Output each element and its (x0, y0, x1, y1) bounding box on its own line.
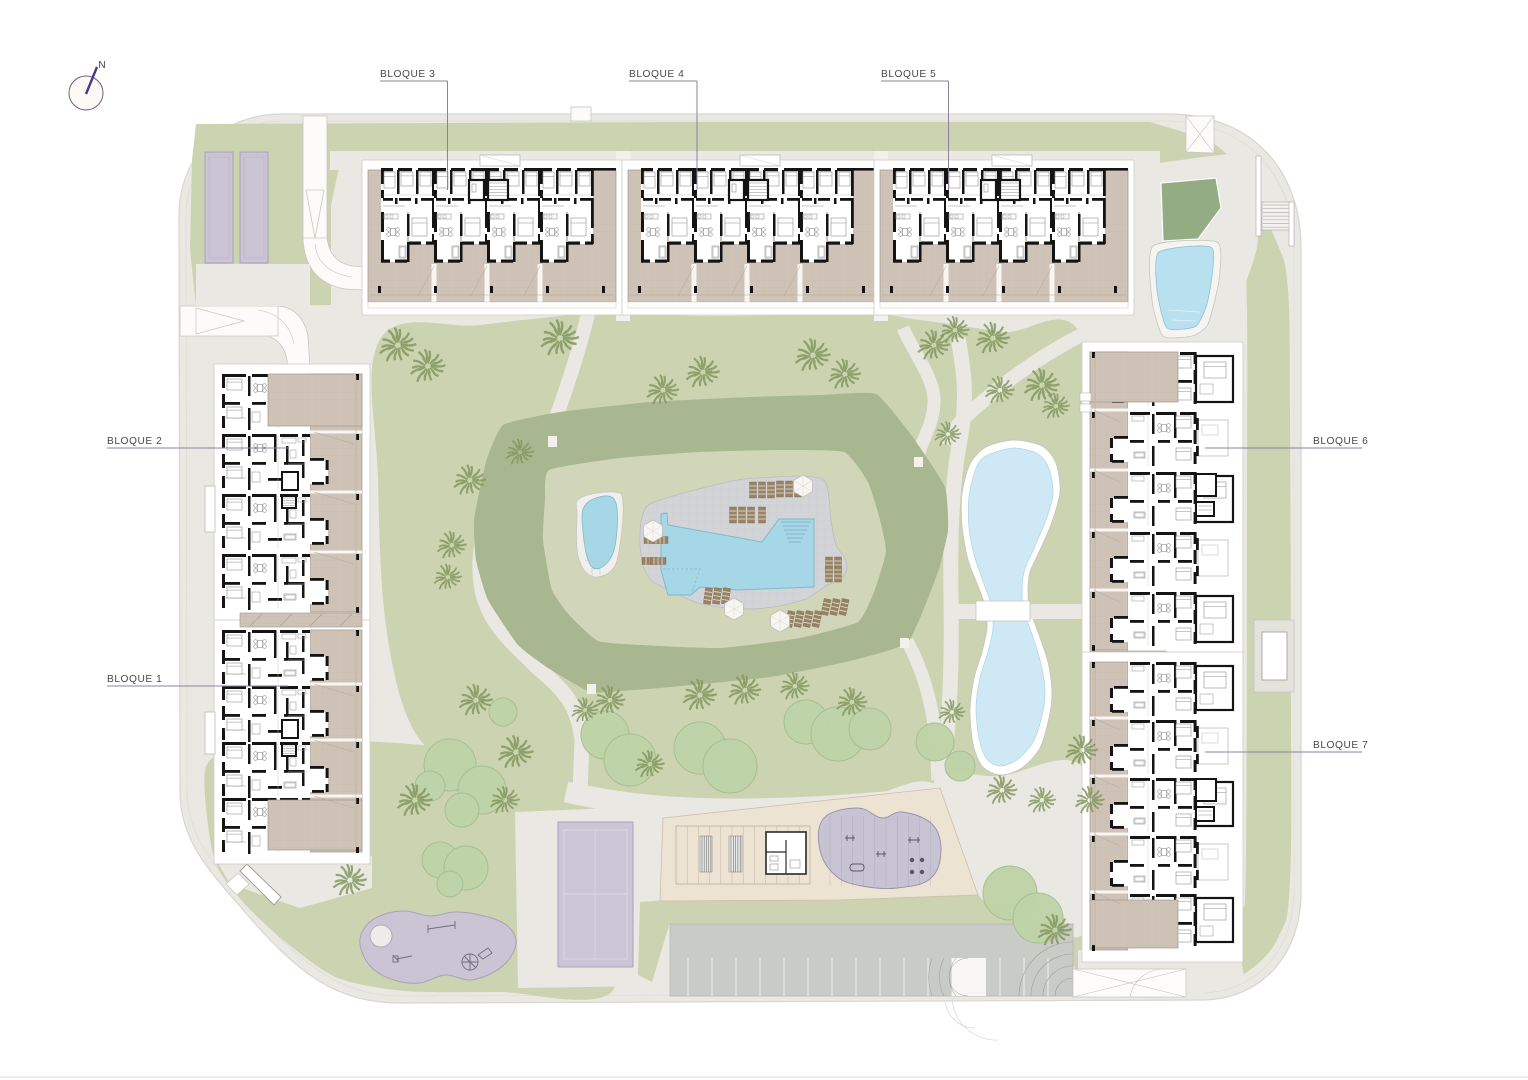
svg-text:BLOQUE 2: BLOQUE 2 (107, 436, 162, 447)
svg-text:BLOQUE 4: BLOQUE 4 (629, 69, 684, 80)
svg-text:BLOQUE 5: BLOQUE 5 (881, 69, 936, 80)
svg-text:N: N (98, 60, 105, 71)
svg-text:BLOQUE 7: BLOQUE 7 (1313, 740, 1368, 751)
svg-text:BLOQUE 3: BLOQUE 3 (380, 69, 435, 80)
svg-text:BLOQUE 6: BLOQUE 6 (1313, 436, 1368, 447)
svg-text:BLOQUE 1: BLOQUE 1 (107, 674, 162, 685)
